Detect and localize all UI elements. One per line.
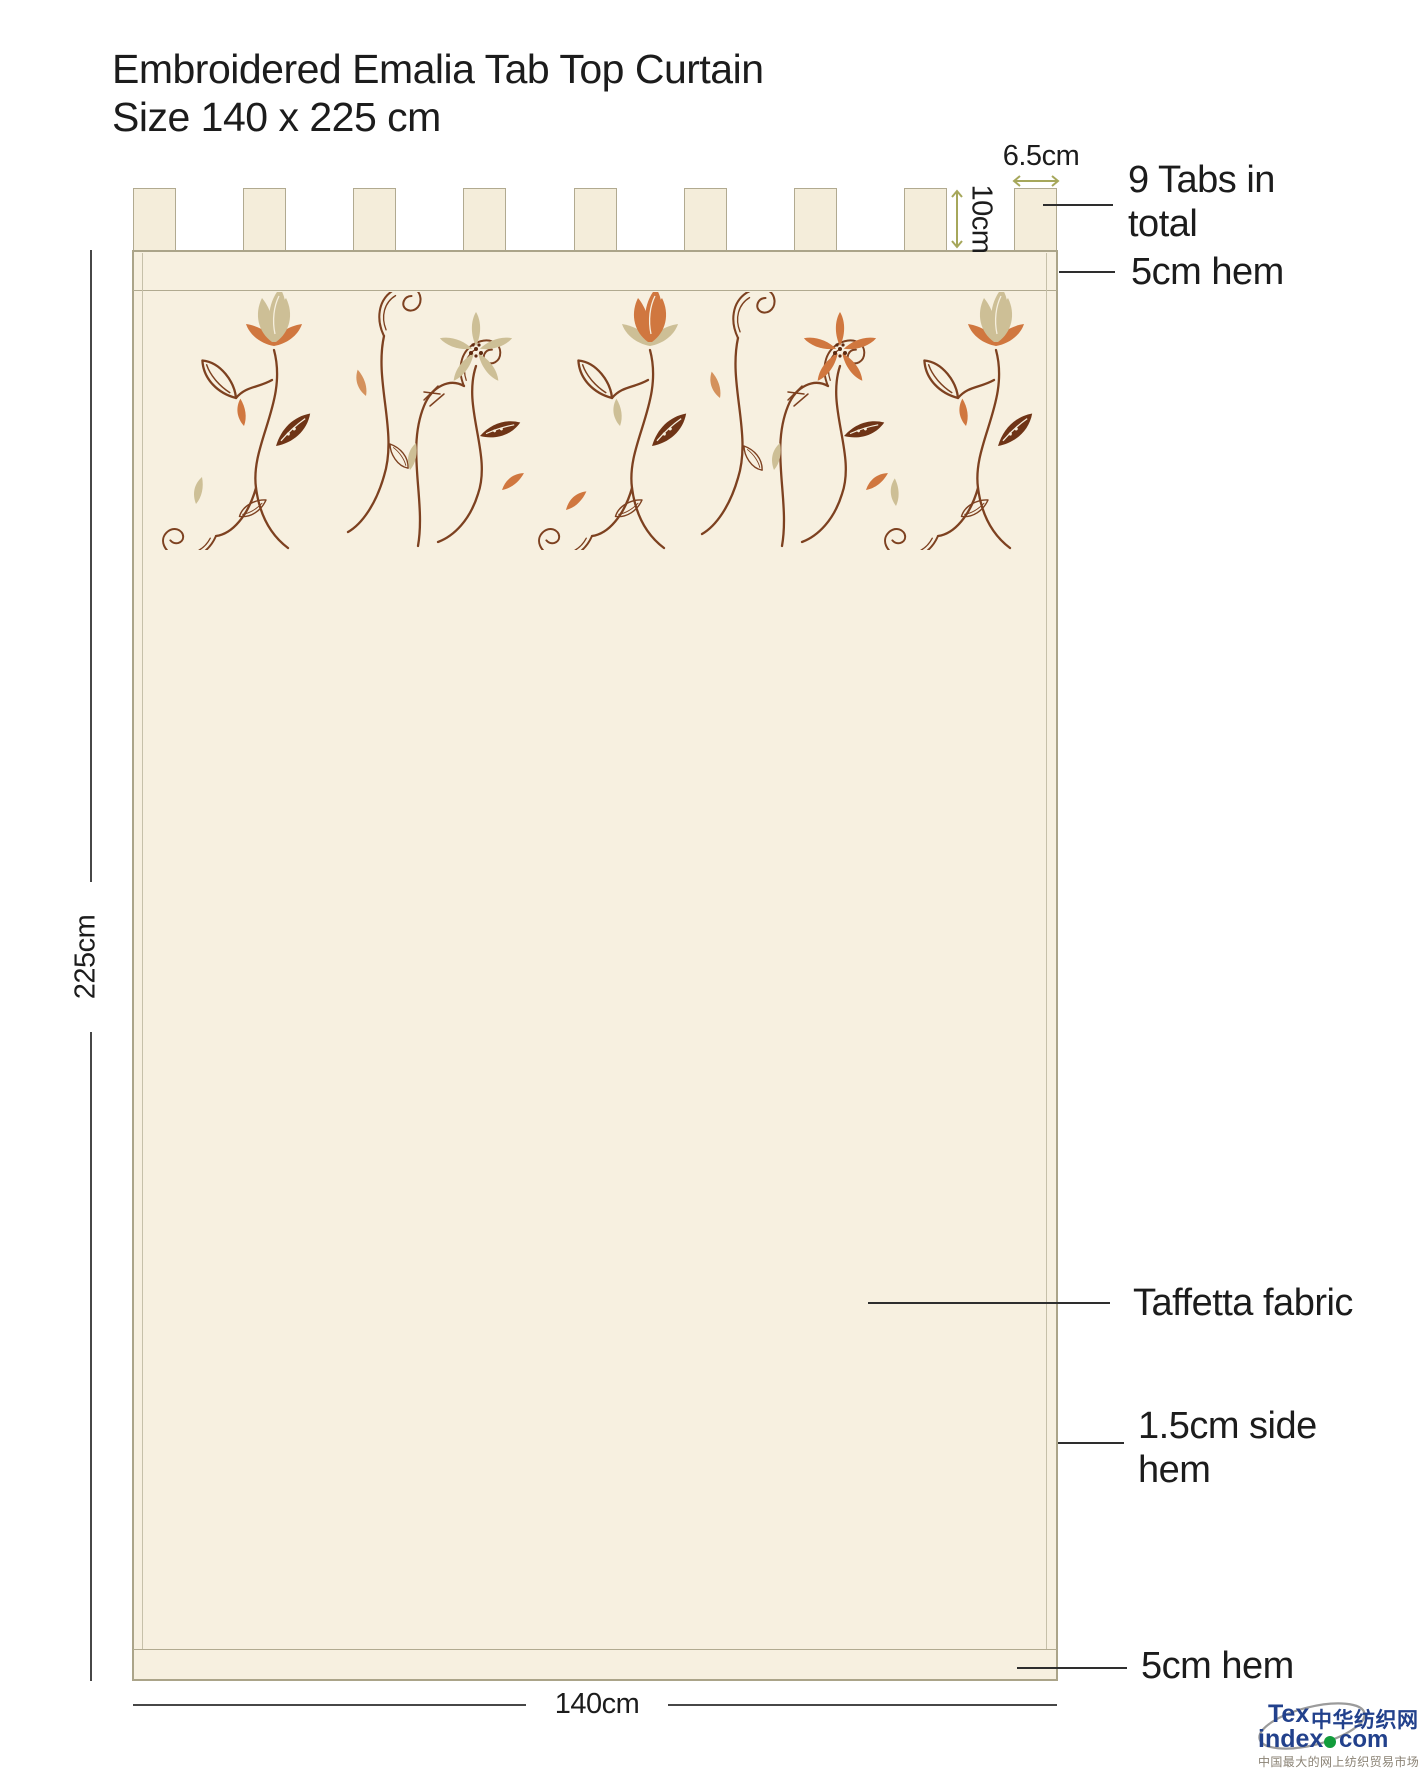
texindex-logo: Tex index com 中华纺织网 中国最大的网上纺织贸易市场	[1252, 1698, 1422, 1772]
embroidery-band	[134, 292, 1056, 550]
tabs-callout-line1: 9 Tabs in	[1128, 158, 1275, 202]
bottom-hem-callout-label: 5cm hem	[1141, 1644, 1294, 1688]
tab-width-arrow-icon	[1011, 174, 1061, 188]
bottom-hem-stitch-line	[133, 1649, 1057, 1650]
curtain-tab	[133, 188, 176, 251]
fabric-callout-line	[868, 1302, 1110, 1304]
curtain-tab	[1014, 188, 1057, 251]
curtain-tab	[574, 188, 617, 251]
height-dimension-label: 225cm	[70, 915, 103, 1000]
curtain-tab	[463, 188, 506, 251]
tab-height-arrow-icon	[950, 188, 964, 250]
curtain-tab	[684, 188, 727, 251]
side-hem-callout-line2: hem	[1138, 1448, 1317, 1492]
logo-cn-name: 中华纺织网	[1311, 1704, 1419, 1734]
top-hem-stitch-line	[133, 290, 1057, 291]
height-dimension-line-upper	[90, 250, 92, 882]
width-dimension-line-left	[133, 1704, 526, 1706]
top-hem-callout-line	[1059, 271, 1115, 273]
curtain-tab	[904, 188, 947, 251]
tabs-callout-line	[1043, 204, 1113, 206]
side-hem-callout-line	[1058, 1442, 1124, 1444]
logo-tagline: 中国最大的网上纺织贸易市场	[1258, 1753, 1419, 1770]
curtain-tab	[353, 188, 396, 251]
fabric-callout-label: Taffetta fabric	[1133, 1281, 1353, 1325]
bottom-hem-callout-line	[1017, 1667, 1127, 1669]
side-hem-callout-label: 1.5cm side hem	[1138, 1404, 1317, 1492]
tabs-callout-line2: total	[1128, 202, 1275, 246]
logo-green-dot-icon	[1324, 1736, 1336, 1748]
page-subtitle-size: Size 140 x 225 cm	[112, 94, 441, 141]
curtain-tab	[243, 188, 286, 251]
height-dimension-line-lower	[90, 1032, 92, 1681]
tab-width-label: 6.5cm	[1000, 140, 1082, 173]
curtain-tab	[794, 188, 837, 251]
tabs-callout-label: 9 Tabs in total	[1128, 158, 1275, 246]
side-hem-callout-line1: 1.5cm side	[1138, 1404, 1317, 1448]
top-hem-callout-label: 5cm hem	[1131, 250, 1284, 294]
width-dimension-label: 140cm	[537, 1688, 657, 1721]
tab-height-label: 10cm	[965, 185, 998, 254]
width-dimension-line-right	[668, 1704, 1057, 1706]
curtain-spec-diagram: Embroidered Emalia Tab Top Curtain Size …	[0, 0, 1422, 1772]
page-title: Embroidered Emalia Tab Top Curtain	[112, 46, 764, 93]
